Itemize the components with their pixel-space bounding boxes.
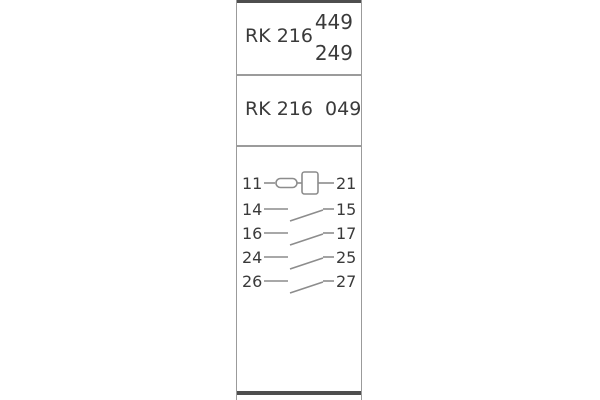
terminal-number-right: 21 (336, 174, 356, 193)
terminal-number-right: 25 (336, 248, 356, 267)
terminal-wiring-diagram: 11 21 14 15 16 17 24 (237, 146, 361, 396)
contact-row: 26 27 (242, 272, 356, 293)
terminal-number-left: 26 (242, 272, 262, 291)
section-divider-top (237, 74, 361, 76)
product-code-upper: 449 (315, 12, 353, 32)
contact-blade (290, 234, 323, 245)
terminal-number-left: 24 (242, 248, 262, 267)
coil-pill-symbol (276, 179, 297, 188)
coil-box-symbol (302, 172, 318, 194)
contact-row: 24 25 (242, 248, 356, 269)
coil-circuit-row: 11 21 (242, 172, 356, 194)
relay-module-panel: RK 216 449 249 RK 216 049 11 21 14 15 16 (236, 0, 362, 400)
terminal-number-right: 27 (336, 272, 356, 291)
terminal-number-right: 15 (336, 200, 356, 219)
terminal-number-right: 17 (336, 224, 356, 243)
product-code-lower: 249 (315, 43, 353, 63)
contact-blade (290, 258, 323, 269)
terminal-number-left: 16 (242, 224, 262, 243)
contact-row: 16 17 (242, 224, 356, 245)
model-number-top: RK 216 (245, 27, 313, 46)
terminal-number-left: 14 (242, 200, 262, 219)
panel-bottom-edge-bar (237, 391, 361, 395)
contact-blade (290, 210, 323, 221)
terminal-number-left: 11 (242, 174, 262, 193)
contact-row: 14 15 (242, 200, 356, 221)
contact-blade (290, 282, 323, 293)
model-number-middle: RK 216 049 (245, 100, 361, 119)
panel-top-edge-bar (237, 0, 361, 3)
